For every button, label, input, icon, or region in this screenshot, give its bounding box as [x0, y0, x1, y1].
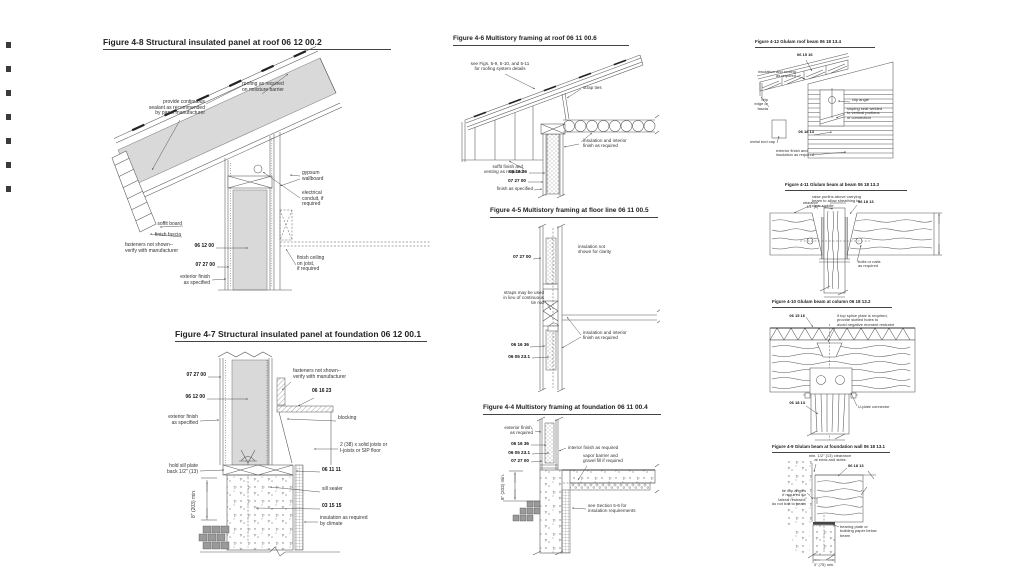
ceiling-insulation — [563, 115, 659, 134]
label-end-cap: metal end cap — [750, 140, 775, 144]
dimension — [509, 471, 523, 500]
label-code-06-16-36: 06 16 36 — [509, 169, 527, 174]
figure-4-9: Figure 4-9 Glulam beam at foundation wal… — [758, 445, 953, 576]
label-code-06-12-00: 06 12 00 — [195, 244, 214, 250]
label-straps: straps may be used in lieu of continuous… — [503, 290, 544, 305]
label-tie-clips: tie clip angles if required for lateral … — [772, 489, 806, 507]
label-code-06-05-23: 06 05 23.1 — [508, 450, 530, 455]
figure-4-7: Figure 4-7 Structural insulated panel at… — [140, 330, 440, 576]
label-insulation: insulation and interior finish as requir… — [583, 138, 627, 148]
label-insulation: insulation as required by climate — [320, 516, 368, 527]
label-insulation: insulation and roofing as required — [758, 70, 796, 79]
label-code-06-16-23: 06 16 23 — [312, 389, 331, 395]
figure-4-10: Figure 4-10 Glulam beam at column 06 18 … — [765, 300, 950, 448]
label-see-figs: see Figs. 5-9, 5-10, and 5-11 for roofin… — [471, 61, 530, 71]
figure-4-11-title: Figure 4-11 Glulam beam at beam 06 18 13… — [785, 183, 907, 191]
label-vapor: vapor barrier and gravel fill if require… — [583, 453, 623, 463]
figure-4-5: Figure 4-5 Multistory framing at floor l… — [445, 208, 660, 408]
label-insulation-note: insulation not shown for clarity — [578, 244, 611, 254]
label-finish-fascia: finish fascia — [155, 233, 181, 239]
label-finish-ceiling: finish ceiling on joist, if required — [297, 256, 324, 273]
margin-mark — [6, 90, 11, 96]
label-code-06-18-13: 06 18 13 — [798, 130, 814, 134]
label-code-06-11-11: 06 11 11 — [322, 468, 341, 474]
label-strap-ties: strap ties — [583, 85, 602, 90]
label-drip-edge: drip edge or fascia — [754, 98, 768, 111]
label-gypsum: gypsum wallboard — [302, 171, 323, 182]
label-code-07-27-00: 07 27 00 — [187, 373, 206, 379]
label-interior: interior finish as required — [568, 445, 618, 450]
carrying-beams — [770, 213, 934, 255]
column-and-u-plate — [803, 368, 858, 440]
wall — [538, 224, 565, 392]
slab — [562, 464, 659, 493]
label-dimension: 8" (203) min. — [500, 474, 505, 500]
margin-mark — [6, 66, 11, 72]
margin-mark — [6, 138, 11, 144]
label-clearance: min. 1/2" (13) clearance at ends and sid… — [809, 454, 851, 463]
detail-drawings-page: Figure 4-8 Structural insulated panel at… — [0, 0, 1024, 576]
wall — [537, 417, 563, 470]
figure-4-8: Figure 4-8 Structural insulated panel at… — [100, 38, 440, 322]
label-code-03-15-15: 03 15 15 — [322, 504, 341, 510]
label-code-06-15-16: 06 15 16 — [797, 53, 813, 57]
figure-4-12: Figure 4-12 Glulam roof beam 06 18 13.4 … — [748, 40, 948, 178]
figure-4-4-title: Figure 4-4 Multistory framing at foundat… — [483, 405, 661, 415]
label-fasteners: fasteners not shown-- verify with manufa… — [293, 369, 346, 380]
label-code-06-15-16: 06 15 16 — [789, 314, 805, 318]
label-sloping-seat: sloping seat welded to vertical portions… — [847, 107, 882, 120]
label-code-06-18-13: 06 18 13 — [858, 200, 874, 204]
label-exterior-finish: exterior finish as specified — [168, 415, 198, 426]
foundation — [503, 470, 570, 555]
label-code-06-12-00: 06 12 00 — [186, 395, 205, 401]
label-exterior: exterior finish and insulation as requir… — [776, 149, 814, 158]
decking — [770, 328, 915, 340]
label-dimension: 8" (203) min. — [192, 490, 198, 518]
margin-mark — [6, 42, 11, 48]
figure-4-6: Figure 4-6 Multistory framing at roof 06… — [445, 36, 660, 210]
figure-4-4: Figure 4-4 Multistory framing at foundat… — [445, 405, 660, 576]
label-clearance: clearance 1/4" (6) — [803, 202, 818, 210]
label-section-note: see Section 5-6 for insulation requireme… — [588, 503, 636, 513]
label-code-07-27-00: 07 27 00 — [513, 254, 531, 259]
margin-mark — [6, 162, 11, 168]
label-code-06-18-13: 06 18 13 — [789, 401, 805, 405]
figure-4-7-title: Figure 4-7 Structural insulated panel at… — [175, 330, 427, 342]
label-clip-angle: clip angle — [852, 98, 869, 102]
figure-4-7-drawing — [140, 330, 440, 576]
label-code-07-27-00: 07 27 00 — [511, 458, 529, 463]
interior-ceiling — [280, 210, 430, 246]
label-raise-purlins: raise purlins above carrying beam to all… — [812, 195, 861, 208]
label-dimension: 3" (75) min. — [814, 563, 835, 567]
label-exterior-finish: exterior finish as specified — [180, 275, 210, 286]
figure-4-8-title: Figure 4-8 Structural insulated panel at… — [103, 38, 391, 50]
label-sill-plate: hold sill plate back 1/2" (13) — [167, 464, 198, 475]
label-sealant: provide continuous sealant as recommende… — [149, 100, 205, 117]
figure-4-10-title: Figure 4-10 Glulam beam at column 06 18 … — [772, 300, 892, 308]
glulam-beam — [815, 471, 876, 522]
sip-wall — [218, 132, 292, 290]
label-sill-sealer: sill sealer — [322, 487, 343, 493]
label-code-06-18-13: 06 18 13 — [848, 464, 864, 468]
label-code-07-27-00: 07 27 00 — [196, 263, 215, 269]
label-finish: finish as specified — [497, 186, 533, 191]
foundation — [199, 465, 340, 556]
floor — [543, 301, 660, 331]
margin-mark — [6, 114, 11, 120]
label-u-plate: U-plate connector — [858, 405, 890, 409]
label-bolts: bolts or nails as required — [858, 260, 880, 269]
label-conduit: electrical conduit, if required — [302, 191, 323, 208]
figure-4-6-title: Figure 4-6 Multistory framing at roof 06… — [453, 36, 629, 46]
figure-4-4-drawing — [445, 405, 660, 576]
label-code-06-16-36: 06 16 36 — [511, 441, 529, 446]
wall — [538, 93, 569, 198]
figure-4-5-title: Figure 4-5 Multistory framing at floor l… — [490, 208, 658, 218]
label-code-06-05-23: 06 05 23.1 — [508, 354, 530, 359]
label-fasteners: fasteners not shown-- verify with manufa… — [125, 243, 178, 254]
margin-mark — [6, 186, 11, 192]
dimension — [201, 478, 217, 520]
label-bearing: bearing plate or building paper below be… — [840, 525, 877, 538]
figure-4-12-title: Figure 4-12 Glulam roof beam 06 18 13.4 — [755, 40, 875, 48]
label-splice-note: if top splice plate is required, provide… — [837, 314, 894, 327]
figure-4-9-title: Figure 4-9 Glulam beam at foundation wal… — [772, 445, 890, 453]
label-soffit-board: soffit board — [157, 222, 182, 228]
figure-4-5-drawing — [445, 208, 660, 408]
label-code-07-27-00: 07 27 00 — [508, 178, 526, 183]
eave-soffit — [462, 106, 543, 162]
label-blocking: blocking — [338, 416, 356, 422]
label-insulation: insulation and interior finish as requir… — [583, 330, 627, 340]
figure-4-11: Figure 4-11 Glulam beam at beam 06 18 13… — [762, 183, 947, 301]
label-roofing: roofing as required on moisture barrier — [242, 82, 284, 93]
label-code-06-16-36: 06 16 36 — [511, 342, 529, 347]
label-exterior: exterior finish, as required — [504, 425, 533, 435]
label-joists: 2 (38) x solid joists or I-joists or SIP… — [340, 443, 387, 454]
